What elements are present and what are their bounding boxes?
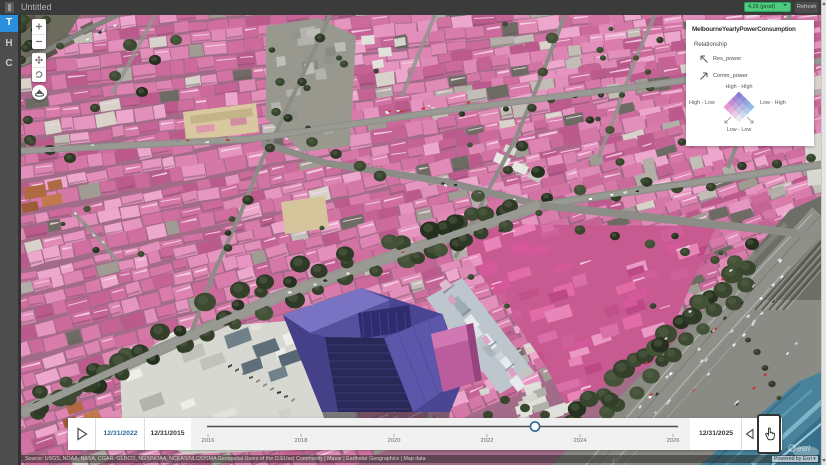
svg-text:esri: esri bbox=[797, 444, 810, 453]
